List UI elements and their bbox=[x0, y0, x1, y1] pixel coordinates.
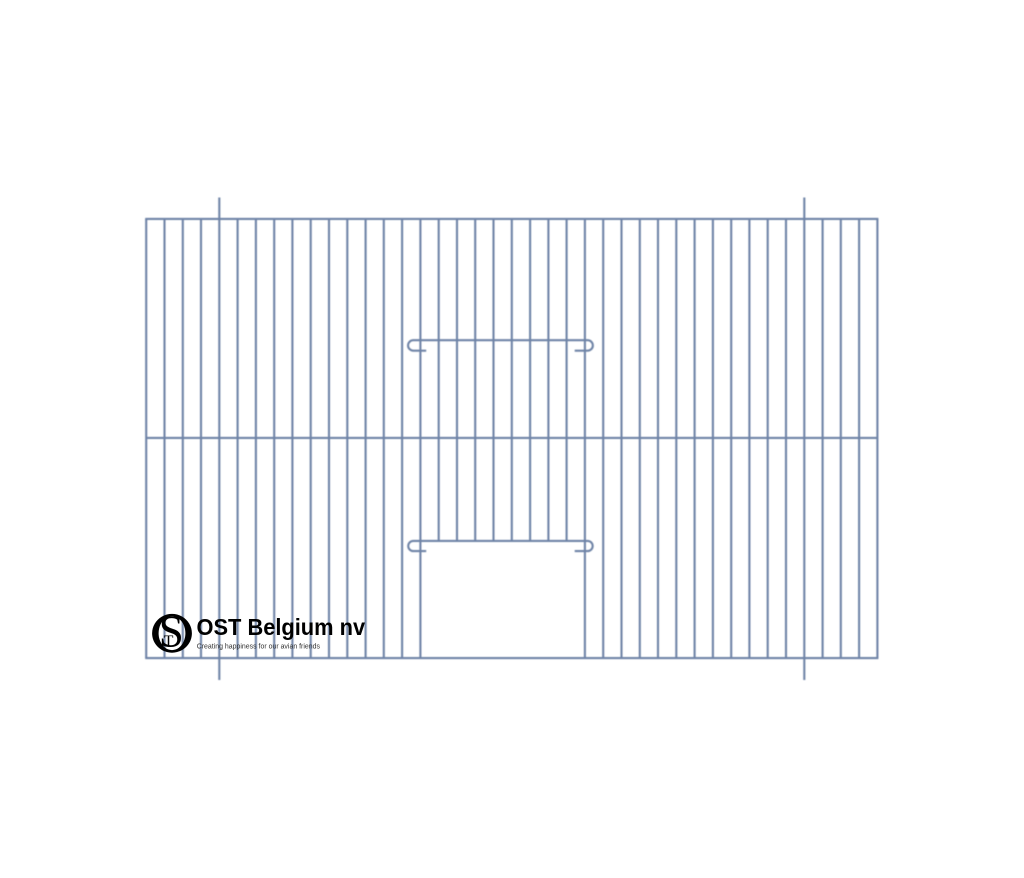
svg-text:Creating happiness for our avi: Creating happiness for our avian friends bbox=[197, 642, 320, 651]
svg-text:OST Belgium nv: OST Belgium nv bbox=[197, 614, 366, 640]
svg-text:T: T bbox=[164, 633, 174, 650]
